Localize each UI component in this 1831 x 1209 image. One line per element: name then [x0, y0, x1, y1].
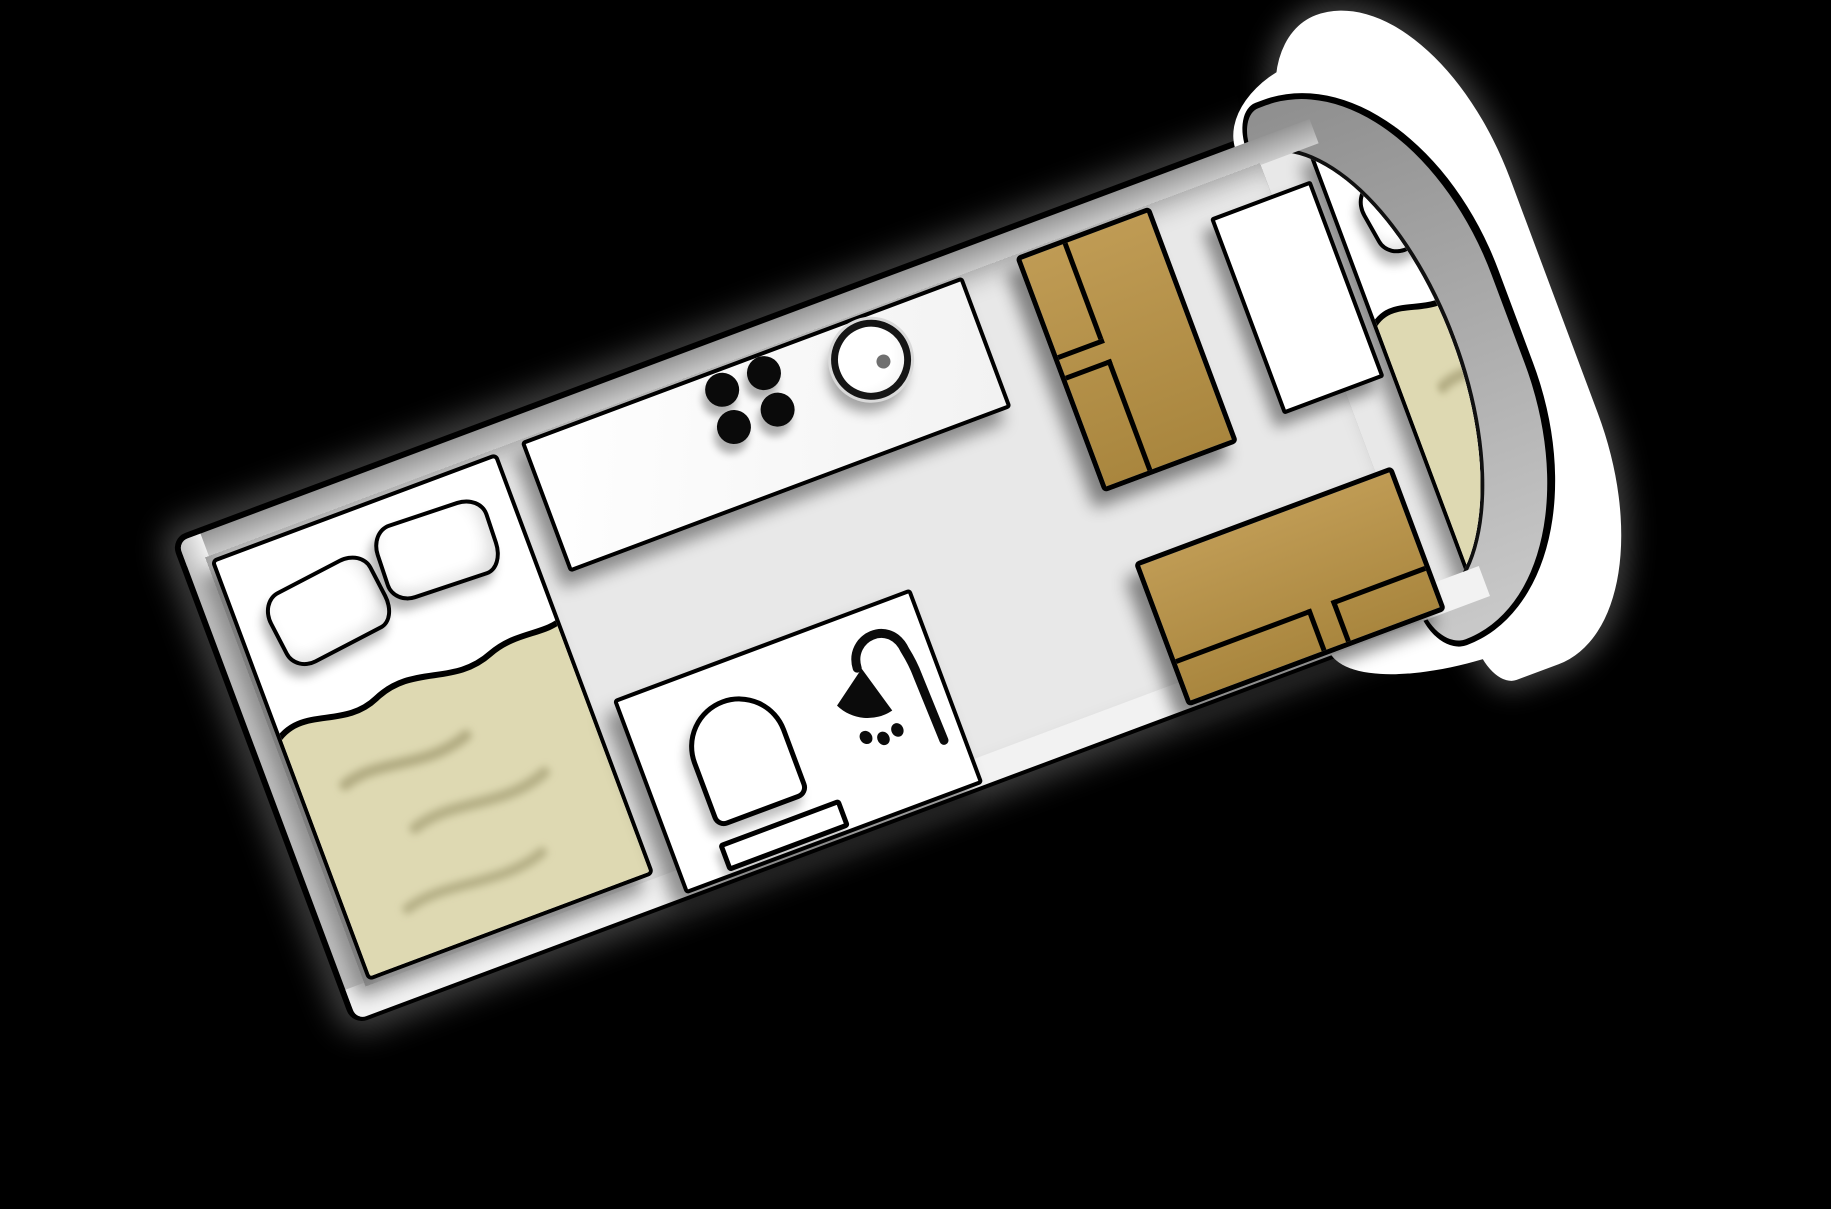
cushion-divider: [1106, 359, 1152, 471]
stove-burner: [700, 368, 744, 412]
stove-burner: [742, 351, 786, 395]
cushion-divider: [1063, 243, 1103, 340]
black-background: [0, 0, 1831, 1209]
toilet: [675, 682, 811, 829]
cushion-divider: [1331, 599, 1351, 642]
cushion-divider: [1306, 608, 1326, 651]
stove-burner: [712, 405, 756, 449]
sink-drain: [874, 353, 892, 371]
cushion-divider: [1175, 609, 1311, 664]
cushion-divider: [1065, 359, 1113, 381]
sink: [820, 308, 923, 411]
cushion-divider: [1057, 338, 1105, 360]
cushion-divider: [1331, 566, 1426, 606]
stove-burner: [756, 388, 800, 432]
pillow: [368, 493, 507, 607]
